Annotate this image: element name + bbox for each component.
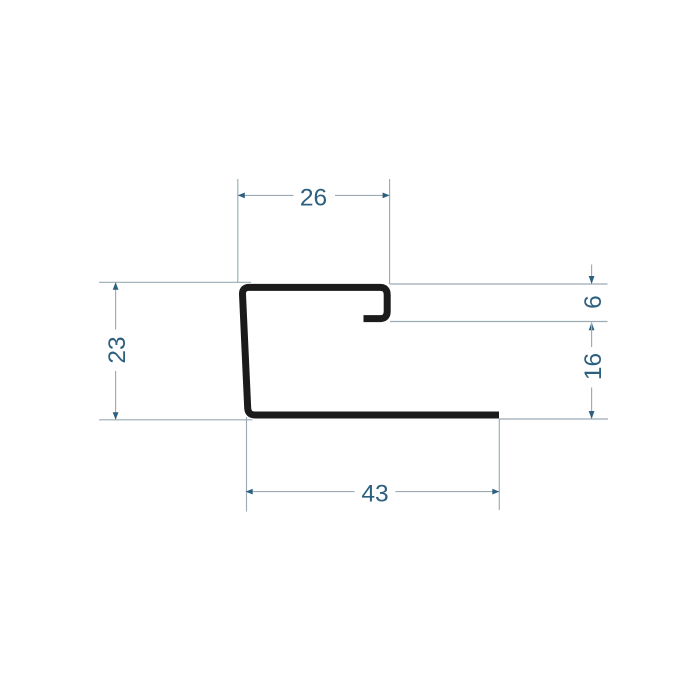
svg-text:43: 43 [361,481,388,508]
svg-text:16: 16 [580,353,607,380]
svg-text:26: 26 [300,184,327,211]
svg-text:23: 23 [104,336,131,363]
svg-text:6: 6 [580,295,607,309]
